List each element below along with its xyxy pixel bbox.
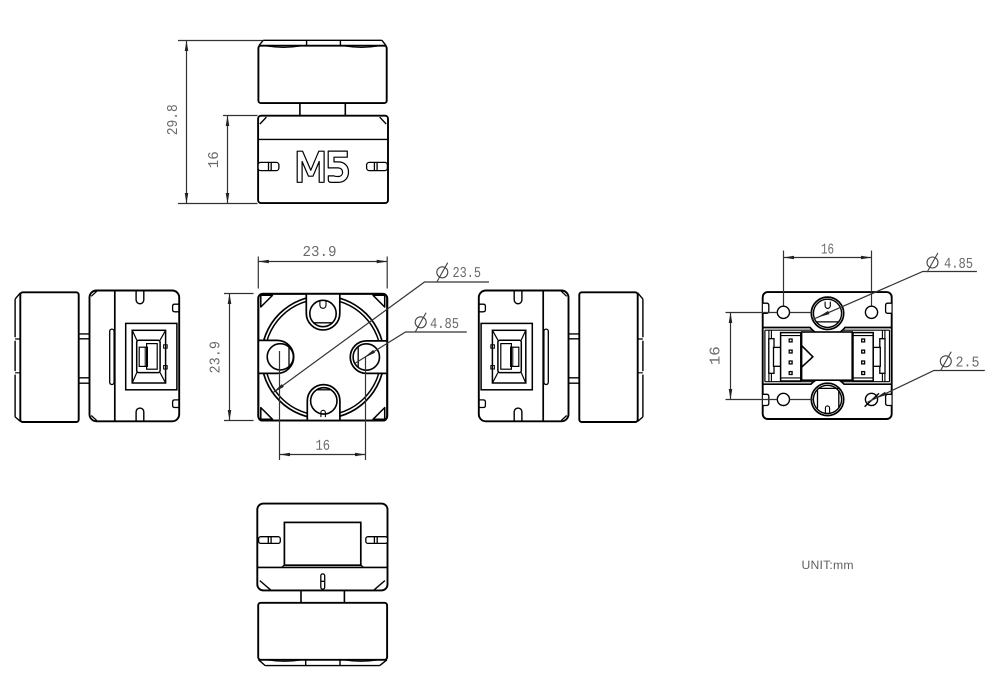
- svg-text:4.85: 4.85: [430, 316, 459, 333]
- svg-text:16: 16: [821, 241, 834, 258]
- svg-text:16: 16: [206, 151, 223, 168]
- svg-text:2.5: 2.5: [955, 355, 979, 372]
- svg-text:4.85: 4.85: [944, 256, 973, 273]
- svg-text:16: 16: [316, 438, 331, 455]
- svg-text:16: 16: [708, 346, 725, 365]
- svg-text:23.9: 23.9: [208, 341, 225, 374]
- svg-text:23.5: 23.5: [452, 265, 481, 282]
- svg-text:23.9: 23.9: [302, 244, 336, 261]
- svg-text:UNIT:mm: UNIT:mm: [801, 558, 853, 572]
- svg-text:29.8: 29.8: [165, 104, 182, 135]
